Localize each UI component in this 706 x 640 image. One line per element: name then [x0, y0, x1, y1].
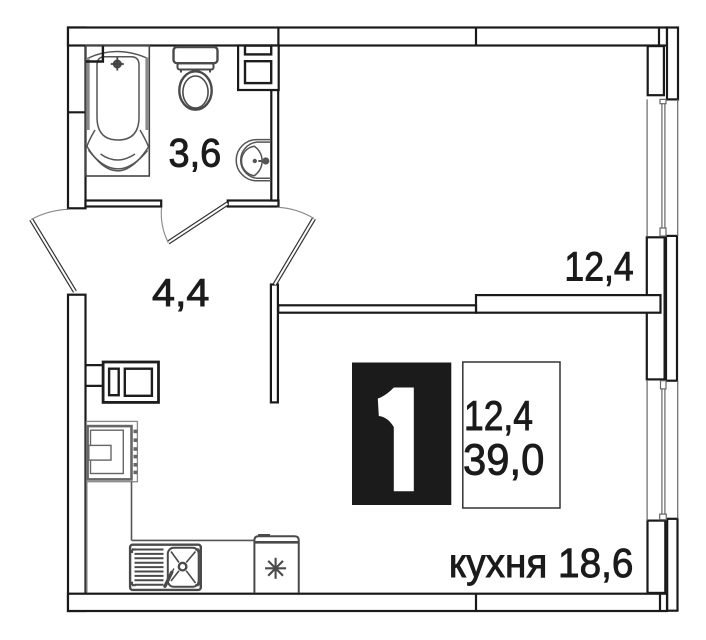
svg-text:4,4: 4,4 [152, 272, 209, 315]
svg-text:12,4: 12,4 [564, 244, 633, 290]
svg-text:39,0: 39,0 [463, 437, 544, 485]
svg-text:12,4: 12,4 [464, 392, 533, 439]
svg-text:3,6: 3,6 [169, 132, 222, 176]
svg-text:кухня 18,6: кухня 18,6 [449, 540, 634, 586]
